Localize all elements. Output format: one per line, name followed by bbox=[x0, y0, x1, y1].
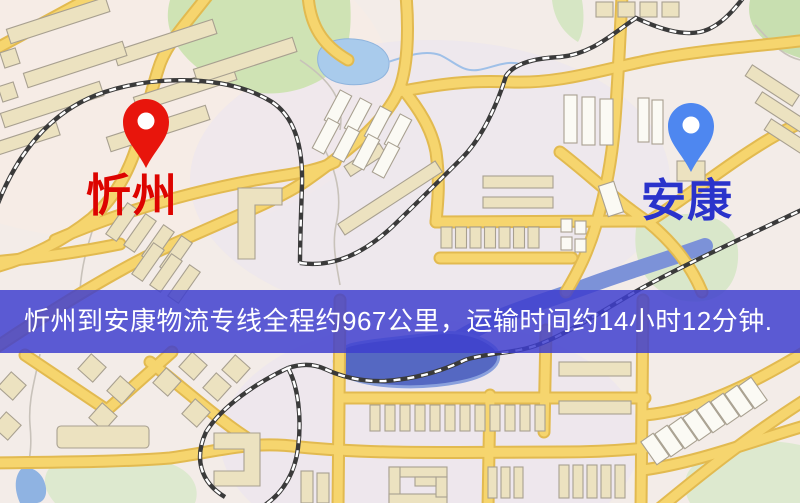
logistics-route-map: 忻州 安康 忻州到安康物流专线全程约967公里，运输时间约14小时12分钟. bbox=[0, 0, 800, 503]
route-summary-text: 忻州到安康物流专线全程约967公里，运输时间约14小时12分钟. bbox=[24, 307, 772, 337]
destination-city-label: 安康 bbox=[641, 179, 733, 224]
map-image bbox=[0, 0, 800, 503]
origin-city-label: 忻州 bbox=[86, 174, 178, 219]
route-info-banner: 忻州到安康物流专线全程约967公里，运输时间约14小时12分钟. bbox=[0, 290, 800, 353]
